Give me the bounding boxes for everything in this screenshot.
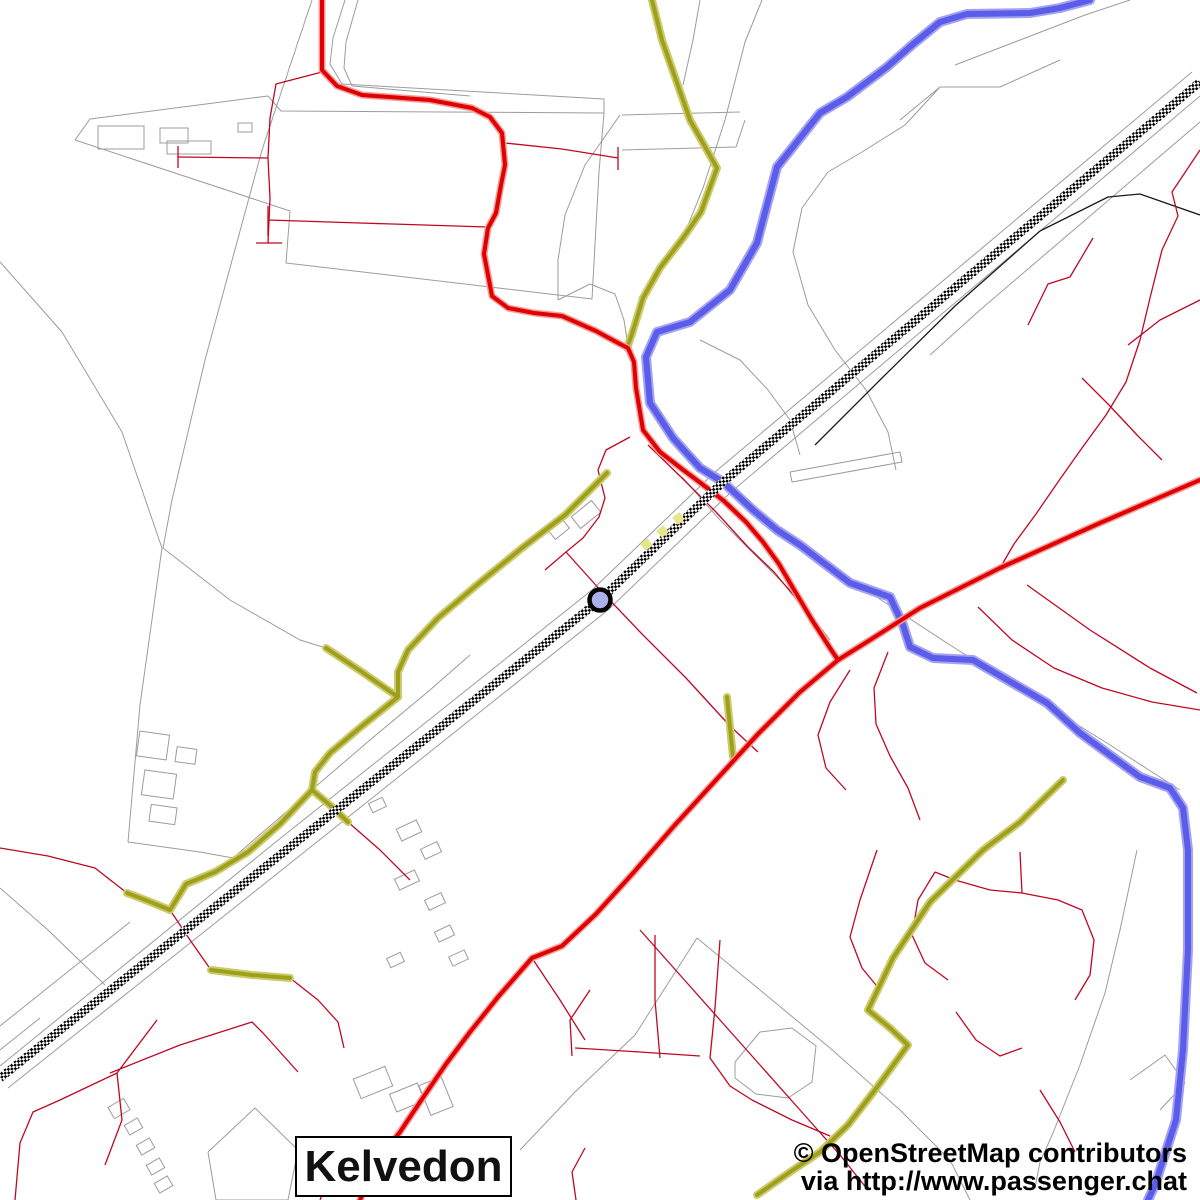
place-name-label: Kelvedon (295, 1136, 512, 1197)
building (425, 893, 446, 911)
railway (0, 82, 1200, 1078)
building (387, 952, 405, 967)
building (98, 126, 144, 149)
building (136, 1138, 154, 1155)
building (146, 1158, 164, 1175)
building (394, 870, 419, 890)
building (449, 950, 469, 966)
building (175, 747, 197, 765)
building (369, 797, 387, 812)
building (149, 804, 177, 824)
building (108, 1098, 130, 1118)
map-viewport[interactable]: Kelvedon © OpenStreetMap contributors vi… (0, 0, 1200, 1200)
building (396, 820, 421, 841)
place-name-text: Kelvedon (304, 1142, 502, 1192)
building (353, 1066, 392, 1098)
building (421, 842, 442, 860)
building (141, 770, 176, 799)
attribution-line-2: via http://www.passenger.chat (794, 1168, 1187, 1196)
building (154, 1176, 172, 1193)
building (238, 123, 252, 132)
black-road (815, 194, 1200, 445)
attribution-line-1: © OpenStreetMap contributors (794, 1140, 1187, 1168)
red-thin-roads (0, 72, 1200, 1200)
building (136, 731, 169, 760)
river (646, 0, 1188, 1200)
railway-station-marker[interactable] (590, 590, 611, 611)
building (124, 1118, 142, 1135)
map-attribution: © OpenStreetMap contributors via http://… (794, 1140, 1187, 1195)
building (434, 925, 454, 942)
map-canvas[interactable] (0, 0, 1200, 1200)
